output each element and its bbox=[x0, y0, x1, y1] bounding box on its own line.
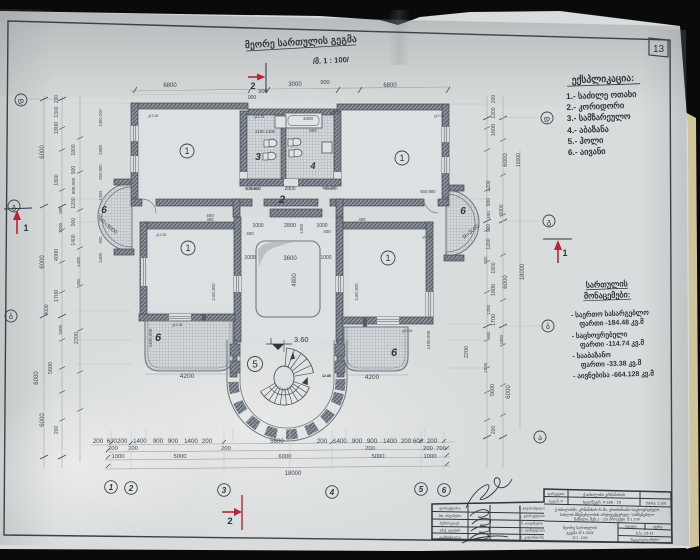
svg-text:1300: 1300 bbox=[491, 107, 497, 118]
svg-text:ნ. ღავაშელი: ნ. ღავაშელი bbox=[521, 521, 543, 526]
svg-text:3.60: 3.60 bbox=[294, 335, 309, 344]
svg-text:1700: 1700 bbox=[54, 290, 60, 302]
svg-text:1400: 1400 bbox=[383, 438, 397, 445]
svg-text:ნაწილი. მუხ.1 - 2/3 პროექტი. მ: ნაწილი. მუხ.1 - 2/3 პროექტი. მ.1:100 bbox=[574, 517, 640, 522]
svg-text:1300,200: 1300,200 bbox=[98, 109, 103, 127]
svg-text:1800: 1800 bbox=[71, 144, 77, 155]
svg-text:5600: 5600 bbox=[270, 438, 284, 445]
svg-text:400: 400 bbox=[246, 231, 254, 236]
svg-text:200: 200 bbox=[108, 446, 118, 452]
svg-text:900: 900 bbox=[486, 331, 491, 339]
svg-text:200: 200 bbox=[491, 95, 497, 104]
svg-text:6000: 6000 bbox=[503, 275, 509, 289]
svg-text:1700: 1700 bbox=[491, 314, 497, 326]
svg-text:800,900: 800,900 bbox=[71, 177, 76, 194]
svg-text:200: 200 bbox=[365, 446, 375, 452]
svg-text:6: 6 bbox=[101, 205, 107, 216]
svg-text:მასშტ. 1:100: მასშტ. 1:100 bbox=[646, 501, 666, 506]
svg-text:სახლის მშენებლობის არქიტექტურუ: სახლის მშენებლობის არქიტექტურულ- სამშენე… bbox=[560, 512, 654, 517]
svg-text:ვ12.28: ვ12.28 bbox=[156, 233, 166, 237]
svg-text:1200: 1200 bbox=[486, 180, 492, 191]
svg-text:ხელშეკრ. # 186 - 15: ხელშეკრ. # 186 - 15 bbox=[583, 500, 622, 505]
svg-text:/მ 1 : 100/: /მ 1 : 100/ bbox=[573, 536, 588, 540]
svg-text:1400: 1400 bbox=[76, 256, 81, 267]
svg-text:1000: 1000 bbox=[252, 223, 263, 229]
svg-text:6: 6 bbox=[155, 332, 162, 344]
svg-text:200: 200 bbox=[93, 438, 104, 445]
svg-text:1800: 1800 bbox=[58, 324, 63, 335]
svg-text:900: 900 bbox=[309, 128, 317, 133]
svg-text:400: 400 bbox=[323, 229, 331, 234]
svg-text:1000: 1000 bbox=[112, 454, 125, 460]
svg-text:1400: 1400 bbox=[184, 438, 198, 445]
svg-text:1800: 1800 bbox=[491, 262, 497, 273]
svg-text:900: 900 bbox=[71, 166, 77, 175]
svg-text:2: 2 bbox=[278, 194, 285, 206]
svg-text:4000: 4000 bbox=[54, 249, 60, 261]
svg-text:3400: 3400 bbox=[303, 116, 314, 121]
svg-text:ლ. ფანცულაია: ლ. ფანცულაია bbox=[519, 528, 545, 533]
svg-text:1300: 1300 bbox=[54, 106, 60, 117]
svg-text:6000: 6000 bbox=[499, 204, 505, 215]
svg-text:900: 900 bbox=[320, 80, 329, 86]
svg-text:4000: 4000 bbox=[44, 304, 50, 315]
svg-text:5600: 5600 bbox=[48, 362, 54, 374]
svg-text:ვ12.28: ვ12.28 bbox=[254, 115, 264, 119]
svg-text:1000: 1000 bbox=[320, 255, 331, 261]
svg-text:6: 6 bbox=[442, 486, 447, 495]
svg-text:5000: 5000 bbox=[174, 454, 187, 460]
svg-text:ხელშ. #: ხელშ. # bbox=[549, 499, 562, 504]
svg-text:1300: 1300 bbox=[299, 223, 304, 234]
svg-text:5600: 5600 bbox=[490, 384, 496, 396]
svg-text:200: 200 bbox=[491, 426, 497, 435]
svg-text:დ: დ bbox=[18, 96, 25, 105]
svg-text:13: 13 bbox=[653, 44, 665, 55]
svg-text:1400: 1400 bbox=[333, 438, 347, 445]
svg-text:გ: გ bbox=[547, 217, 552, 226]
svg-text:1: 1 bbox=[23, 223, 28, 233]
svg-text:1800: 1800 bbox=[491, 284, 497, 296]
svg-text:6000: 6000 bbox=[506, 385, 512, 399]
svg-text:6000: 6000 bbox=[503, 153, 509, 167]
svg-text:1: 1 bbox=[184, 146, 189, 156]
svg-text:გეგმა /მ 1:100/: გეგმა /მ 1:100/ bbox=[566, 530, 594, 535]
svg-text:18000: 18000 bbox=[516, 153, 522, 167]
svg-text:200: 200 bbox=[427, 438, 438, 445]
svg-text:ს.ს.-15-11: ს.ს.-15-11 bbox=[636, 531, 654, 536]
svg-text:900: 900 bbox=[486, 198, 492, 207]
svg-text:4.- აბაზანა: 4.- აბაზანა bbox=[567, 124, 609, 135]
svg-text:1400: 1400 bbox=[71, 234, 77, 245]
svg-text:1900: 1900 bbox=[98, 144, 103, 155]
svg-text:900: 900 bbox=[153, 438, 164, 445]
svg-text:ფურც.: ფურც. bbox=[653, 525, 663, 529]
svg-text:600: 600 bbox=[413, 438, 424, 445]
svg-text:6: 6 bbox=[391, 347, 398, 359]
svg-text:ვ12.28: ვ12.28 bbox=[172, 323, 182, 327]
svg-text:5000: 5000 bbox=[372, 454, 385, 460]
svg-text:5: 5 bbox=[419, 485, 424, 494]
svg-text:800,900: 800,900 bbox=[98, 164, 103, 180]
svg-text:1: 1 bbox=[109, 483, 114, 492]
svg-text:6800: 6800 bbox=[163, 83, 177, 89]
svg-text:ვ12.28: ვ12.28 bbox=[422, 235, 432, 239]
svg-text:დირექტორი: დირექტორი bbox=[439, 506, 460, 511]
svg-text:1400,900: 1400,900 bbox=[211, 283, 216, 301]
svg-text:1200: 1200 bbox=[58, 222, 63, 233]
svg-text:600,900: 600,900 bbox=[322, 185, 338, 190]
svg-text:1000: 1000 bbox=[424, 454, 437, 460]
svg-text:900: 900 bbox=[76, 278, 81, 286]
svg-text:1400,900: 1400,900 bbox=[354, 283, 359, 301]
svg-text:ბ: ბ bbox=[546, 322, 550, 331]
svg-text:1400: 1400 bbox=[98, 190, 103, 201]
svg-text:3: 3 bbox=[222, 486, 227, 495]
svg-text:6000: 6000 bbox=[279, 454, 292, 460]
svg-text:დამკვეთი: დამკვეთი bbox=[548, 491, 565, 496]
svg-text:1400,900: 1400,900 bbox=[426, 330, 431, 349]
svg-text:900: 900 bbox=[98, 236, 103, 244]
svg-text:6000: 6000 bbox=[40, 413, 46, 427]
svg-text:2200: 2200 bbox=[464, 346, 470, 358]
svg-text:გ. კვირკველია: გ. კვირკველია bbox=[519, 513, 545, 518]
svg-text:“წყალბურღმშენი”: “წყალბურღმშენი” bbox=[630, 537, 661, 542]
svg-text:3600: 3600 bbox=[283, 256, 297, 262]
svg-text:1200: 1200 bbox=[486, 304, 491, 315]
svg-text:1800: 1800 bbox=[54, 174, 60, 185]
svg-text:200: 200 bbox=[54, 426, 60, 435]
svg-text:1600: 1600 bbox=[491, 124, 497, 136]
svg-text:2: 2 bbox=[227, 516, 232, 527]
svg-text:მთ. ინჟინერი: მთ. ინჟინერი bbox=[439, 513, 462, 518]
svg-text:4200: 4200 bbox=[180, 373, 195, 380]
svg-text:6000: 6000 bbox=[40, 145, 46, 159]
svg-text:6000: 6000 bbox=[40, 255, 46, 269]
svg-text:2200: 2200 bbox=[74, 332, 80, 344]
svg-text:200: 200 bbox=[202, 438, 213, 445]
svg-text:შემსრულებ.: შემსრულებ. bbox=[440, 521, 461, 526]
svg-text:1400,900: 1400,900 bbox=[148, 328, 153, 347]
svg-text:გ: გ bbox=[12, 202, 17, 211]
svg-text:1: 1 bbox=[562, 248, 567, 258]
svg-text:200: 200 bbox=[128, 446, 138, 452]
svg-text:დამხაზველი: დამხაზველი bbox=[439, 535, 461, 540]
svg-text:600,900: 600,900 bbox=[420, 189, 436, 194]
svg-text:4200: 4200 bbox=[365, 374, 380, 381]
svg-text:200: 200 bbox=[401, 438, 412, 445]
svg-text:1: 1 bbox=[399, 153, 404, 163]
svg-text:ვ12.28: ვ12.28 bbox=[148, 114, 158, 118]
svg-text:1800: 1800 bbox=[499, 334, 504, 345]
svg-text:1700: 1700 bbox=[483, 362, 488, 373]
svg-text:დ: დ bbox=[544, 114, 551, 123]
svg-text:900: 900 bbox=[168, 438, 179, 445]
svg-text:2: 2 bbox=[128, 484, 134, 493]
svg-text:12.85: 12.85 bbox=[322, 374, 331, 378]
svg-text:900,900: 900,900 bbox=[245, 186, 262, 191]
svg-text:არქ. ჯგუფის: არქ. ჯგუფის bbox=[440, 528, 461, 533]
svg-text:ვ12.28: ვ12.28 bbox=[434, 114, 444, 118]
svg-text:3000: 3000 bbox=[288, 82, 302, 88]
svg-text:5: 5 bbox=[252, 360, 258, 371]
svg-text:900: 900 bbox=[367, 438, 378, 445]
svg-text:ქ.თბილისი კრწანისის: ქ.თბილისი კრწანისის bbox=[583, 492, 625, 497]
svg-text:2: 2 bbox=[250, 81, 255, 91]
svg-text:900: 900 bbox=[58, 206, 63, 214]
svg-text:1400: 1400 bbox=[133, 438, 147, 445]
svg-text:სტადია: სტადია bbox=[625, 525, 637, 529]
svg-text:200: 200 bbox=[54, 95, 60, 104]
svg-text:4: 4 bbox=[309, 161, 315, 171]
svg-text:700: 700 bbox=[436, 446, 446, 452]
svg-text:1800: 1800 bbox=[54, 122, 60, 134]
svg-text:900: 900 bbox=[352, 438, 363, 445]
svg-text:4800: 4800 bbox=[292, 273, 298, 287]
svg-text:3: 3 bbox=[255, 152, 261, 163]
svg-text:400: 400 bbox=[359, 217, 367, 222]
svg-text:400: 400 bbox=[207, 217, 215, 222]
svg-text:200: 200 bbox=[317, 438, 328, 445]
svg-text:18000: 18000 bbox=[285, 471, 302, 477]
svg-text:ნ. ჯავახიშვილი: ნ. ჯავახიშვილი bbox=[519, 506, 545, 511]
svg-text:400: 400 bbox=[98, 214, 103, 222]
svg-text:ა: ა bbox=[538, 433, 542, 442]
svg-text:200: 200 bbox=[423, 446, 433, 452]
svg-text:2100 1400: 2100 1400 bbox=[255, 129, 275, 134]
svg-text:ვ12.28: ვ12.28 bbox=[330, 111, 340, 115]
svg-text:ქ.თბილისში, კრწანისის რ-ში, ერ: ქ.თბილისში, კრწანისის რ-ში, ერთბინიანი ს… bbox=[555, 507, 660, 512]
svg-text:ვ12.28: ვ12.28 bbox=[402, 329, 412, 333]
svg-text:4: 4 bbox=[329, 488, 335, 497]
svg-text:18000: 18000 bbox=[520, 263, 526, 280]
svg-text:6800: 6800 bbox=[383, 83, 397, 89]
svg-text:400: 400 bbox=[486, 211, 491, 219]
svg-text:ბ: ბ bbox=[9, 312, 13, 321]
svg-text:1000: 1000 bbox=[244, 255, 255, 261]
svg-text:1: 1 bbox=[185, 243, 190, 253]
svg-text:400: 400 bbox=[483, 256, 488, 264]
svg-text:1: 1 bbox=[385, 253, 390, 263]
svg-text:1200: 1200 bbox=[486, 238, 492, 249]
svg-text:2800: 2800 bbox=[284, 223, 296, 229]
svg-text:2800: 2800 bbox=[284, 186, 295, 192]
svg-text:6: 6 bbox=[460, 206, 466, 217]
svg-text:6000: 6000 bbox=[34, 371, 40, 385]
svg-text:200: 200 bbox=[221, 446, 231, 452]
svg-text:900: 900 bbox=[486, 224, 492, 233]
svg-text:900: 900 bbox=[248, 95, 257, 101]
svg-text:1400: 1400 bbox=[98, 252, 103, 263]
svg-text:ნ. კალანდაძე: ნ. კალანდაძე bbox=[520, 535, 544, 540]
